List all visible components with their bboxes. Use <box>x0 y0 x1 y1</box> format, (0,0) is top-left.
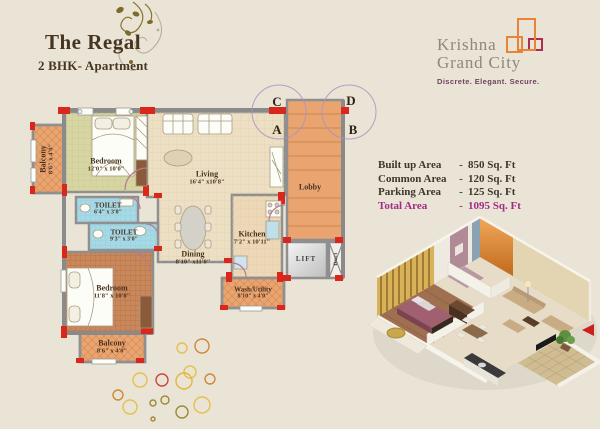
area-row-total: Total Area - 1095 Sq. Ft <box>378 200 538 214</box>
entry-marker-b: B <box>349 122 358 138</box>
room-label-kitchen: Kitchen 7'2" x 10'11" <box>234 229 270 246</box>
area-value: 125 Sq. Ft <box>468 186 538 200</box>
room-label-balcony-2: Balcony 8'6" x 4'0" <box>97 338 127 355</box>
room-label-bedroom-2: Bedroom 11'8" x 10'8" <box>94 283 130 300</box>
title-block: The Regal 2 BHK- Apartment <box>18 32 168 74</box>
entry-marker-c: C <box>272 94 281 110</box>
area-row: Parking Area - 125 Sq. Ft <box>378 186 538 200</box>
room-label-dining: Dining 8'10" x11'0" <box>176 249 211 266</box>
logo-square-orange-small-icon <box>506 36 523 53</box>
brand-tagline: Discrete. Elegant. Secure. <box>437 77 587 86</box>
area-value: 120 Sq. Ft <box>468 173 538 187</box>
room-label-lift: LIFT <box>296 255 316 263</box>
room-label-balcony-1: Balcony 8'6" x 4'0" <box>38 144 55 174</box>
area-row: Common Area - 120 Sq. Ft <box>378 173 538 187</box>
area-row: Built up Area - 850 Sq. Ft <box>378 159 538 173</box>
page-title: The Regal <box>18 32 168 53</box>
area-value: 1095 Sq. Ft <box>468 200 538 214</box>
room-label-wash-utility: Wash/Utility 8'10" x 4'0" <box>234 285 272 300</box>
room-label-lobby: Lobby <box>299 182 321 191</box>
area-panel: Built up Area - 850 Sq. Ft Common Area -… <box>378 159 538 213</box>
area-separator: - <box>454 159 468 173</box>
room-label-toilet-2: TOILET 9'3" x 3'0" <box>110 228 138 243</box>
brand-logo: Krishna Grand City Discrete. Elegant. Se… <box>437 10 587 86</box>
entry-marker-d: D <box>346 93 355 109</box>
room-label-living: Living 16'4" x10'8" <box>189 169 224 186</box>
room-label-duct: Duct <box>333 252 339 265</box>
area-label: Built up Area <box>378 159 454 173</box>
page-subtitle: 2 BHK- Apartment <box>18 58 168 74</box>
brand-name-line2: Grand City <box>437 54 587 72</box>
room-label-toilet-1: TOILET 6'4" x 3'8" <box>94 201 122 216</box>
area-label: Total Area <box>378 200 454 214</box>
area-separator: - <box>454 186 468 200</box>
brochure-page: The Regal 2 BHK- Apartment Krishna Grand… <box>0 0 600 429</box>
area-separator: - <box>454 200 468 214</box>
room-label-bedroom-1: Bedroom 12'0" x 10'0" <box>88 156 125 173</box>
entry-marker-a: A <box>272 122 281 138</box>
area-label: Common Area <box>378 173 454 187</box>
apartment-3d-render <box>360 212 600 429</box>
area-separator: - <box>454 173 468 187</box>
area-value: 850 Sq. Ft <box>468 159 538 173</box>
area-label: Parking Area <box>378 186 454 200</box>
